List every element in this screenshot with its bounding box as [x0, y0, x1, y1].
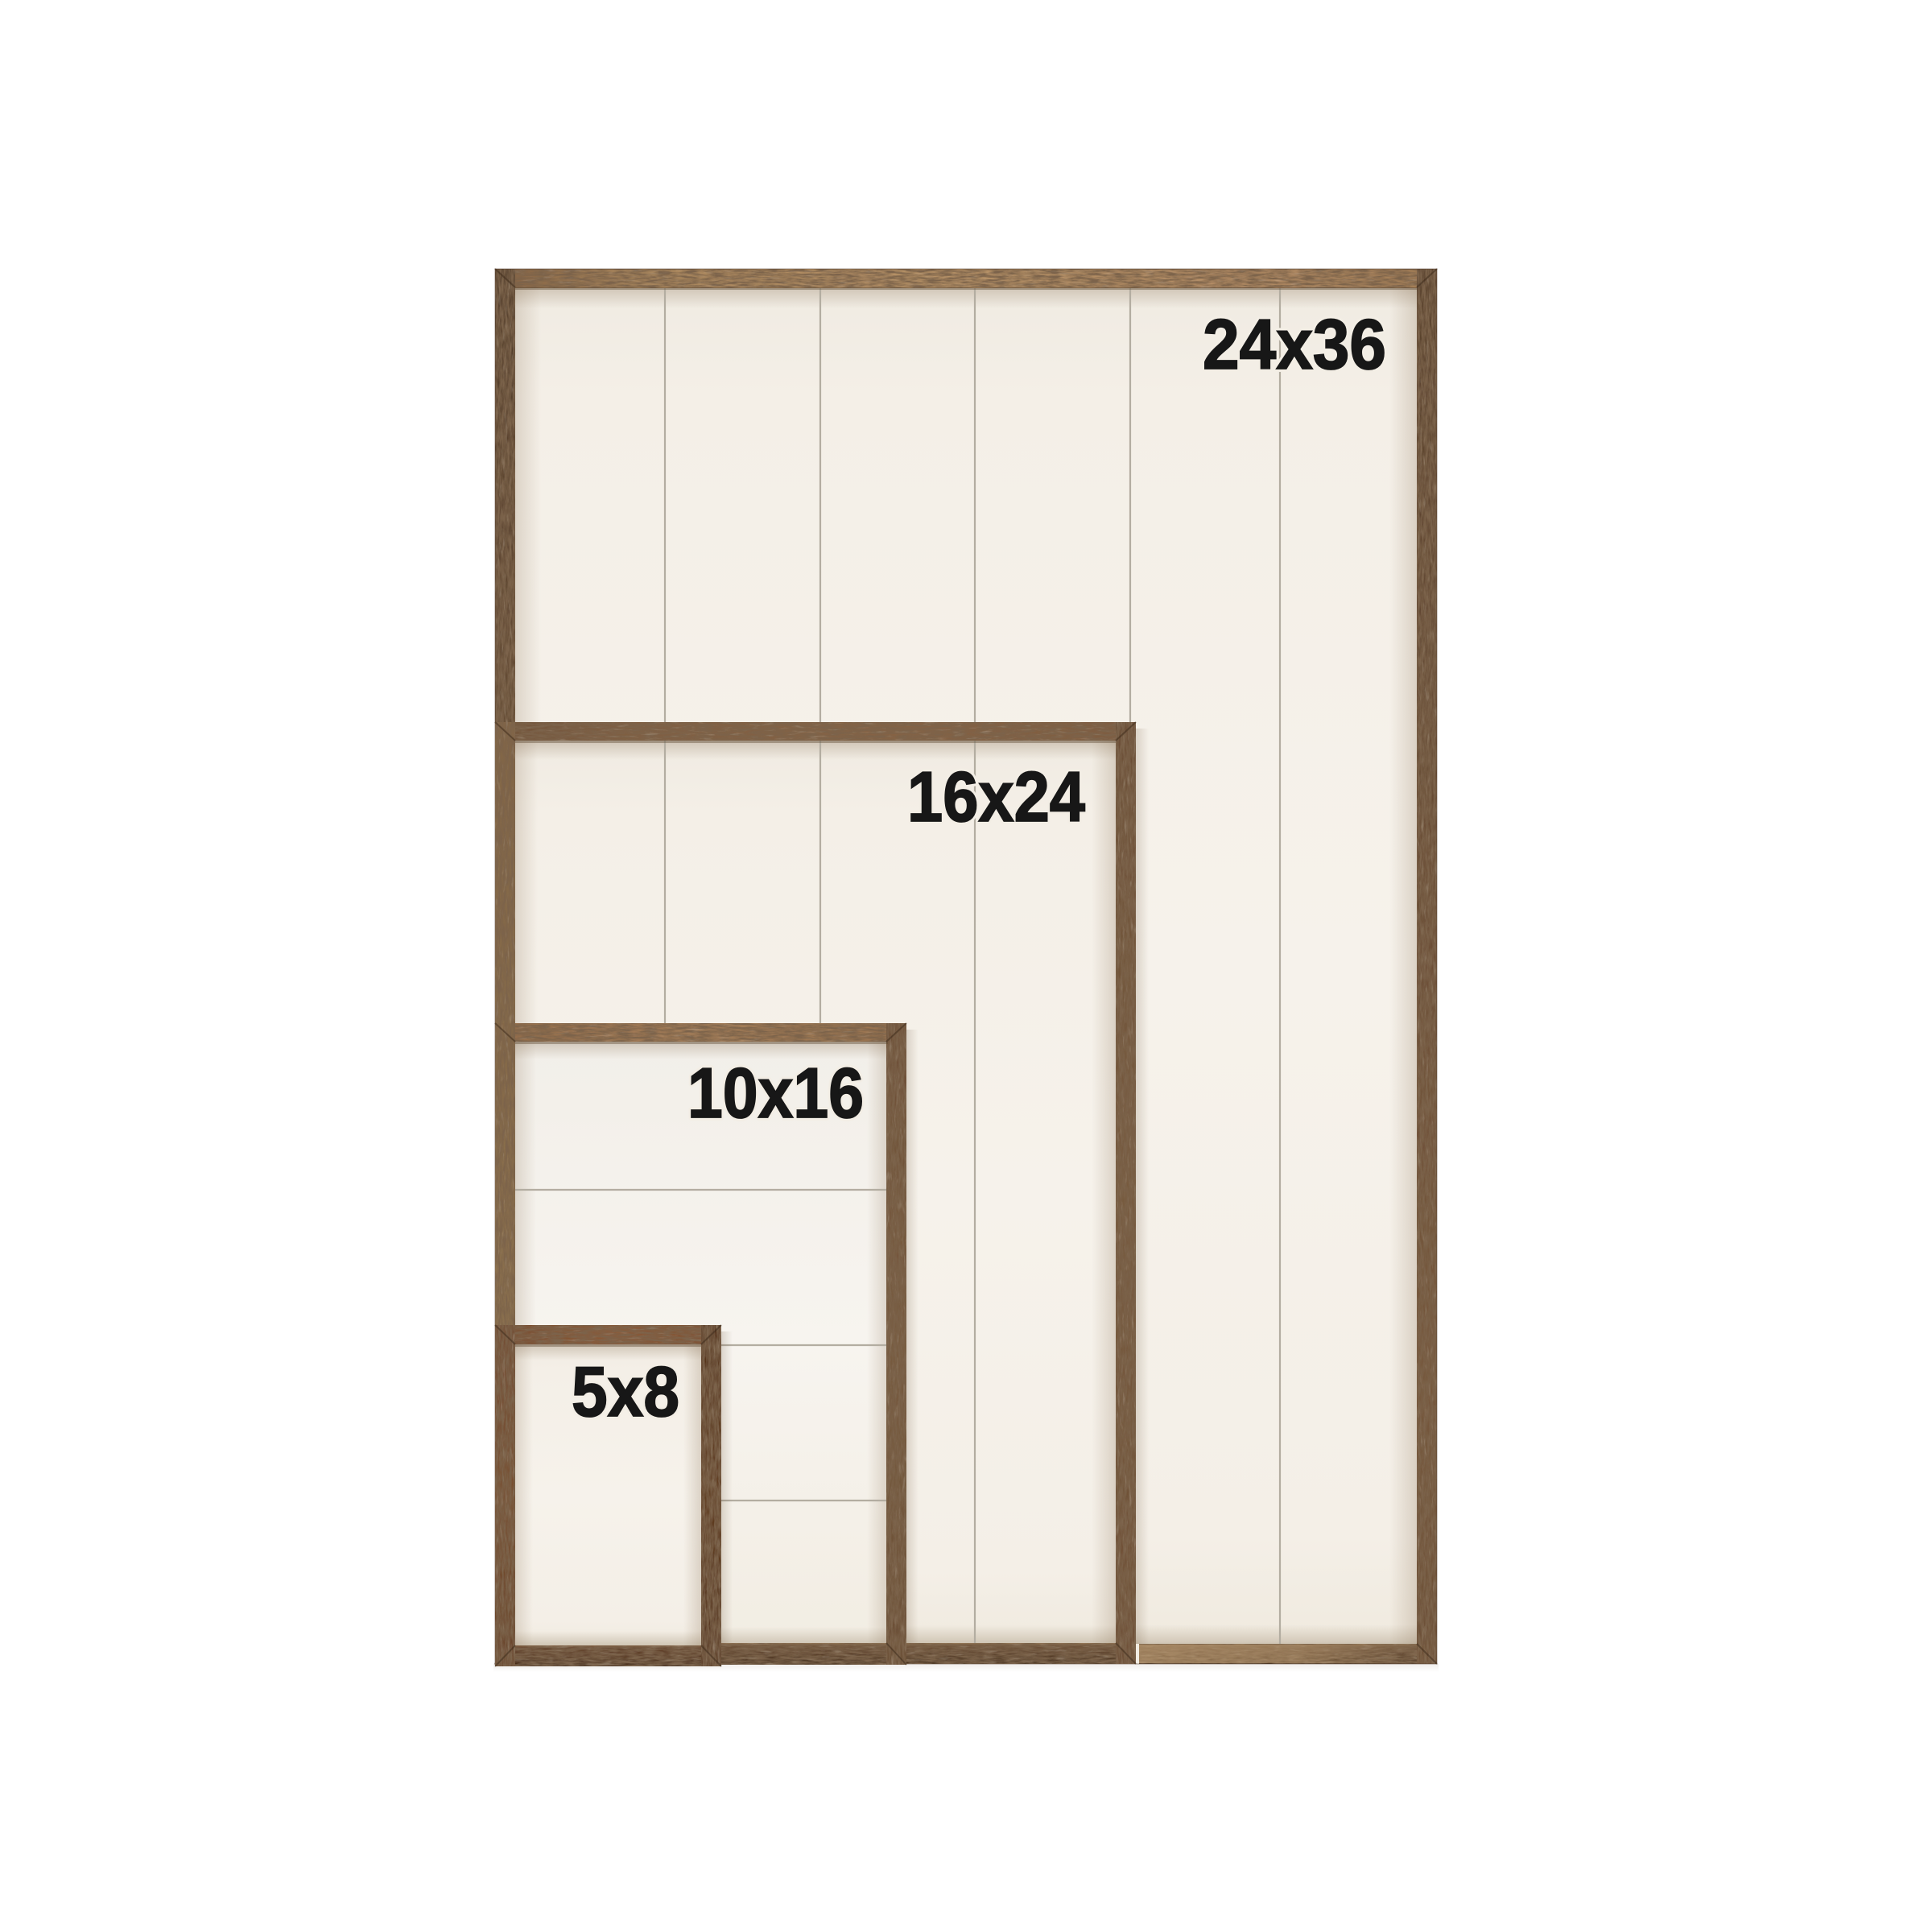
- svg-text:24x36: 24x36: [1203, 304, 1386, 384]
- svg-text:10x16: 10x16: [687, 1053, 864, 1133]
- svg-text:5x8: 5x8: [572, 1352, 679, 1431]
- svg-text:16x24: 16x24: [907, 757, 1085, 836]
